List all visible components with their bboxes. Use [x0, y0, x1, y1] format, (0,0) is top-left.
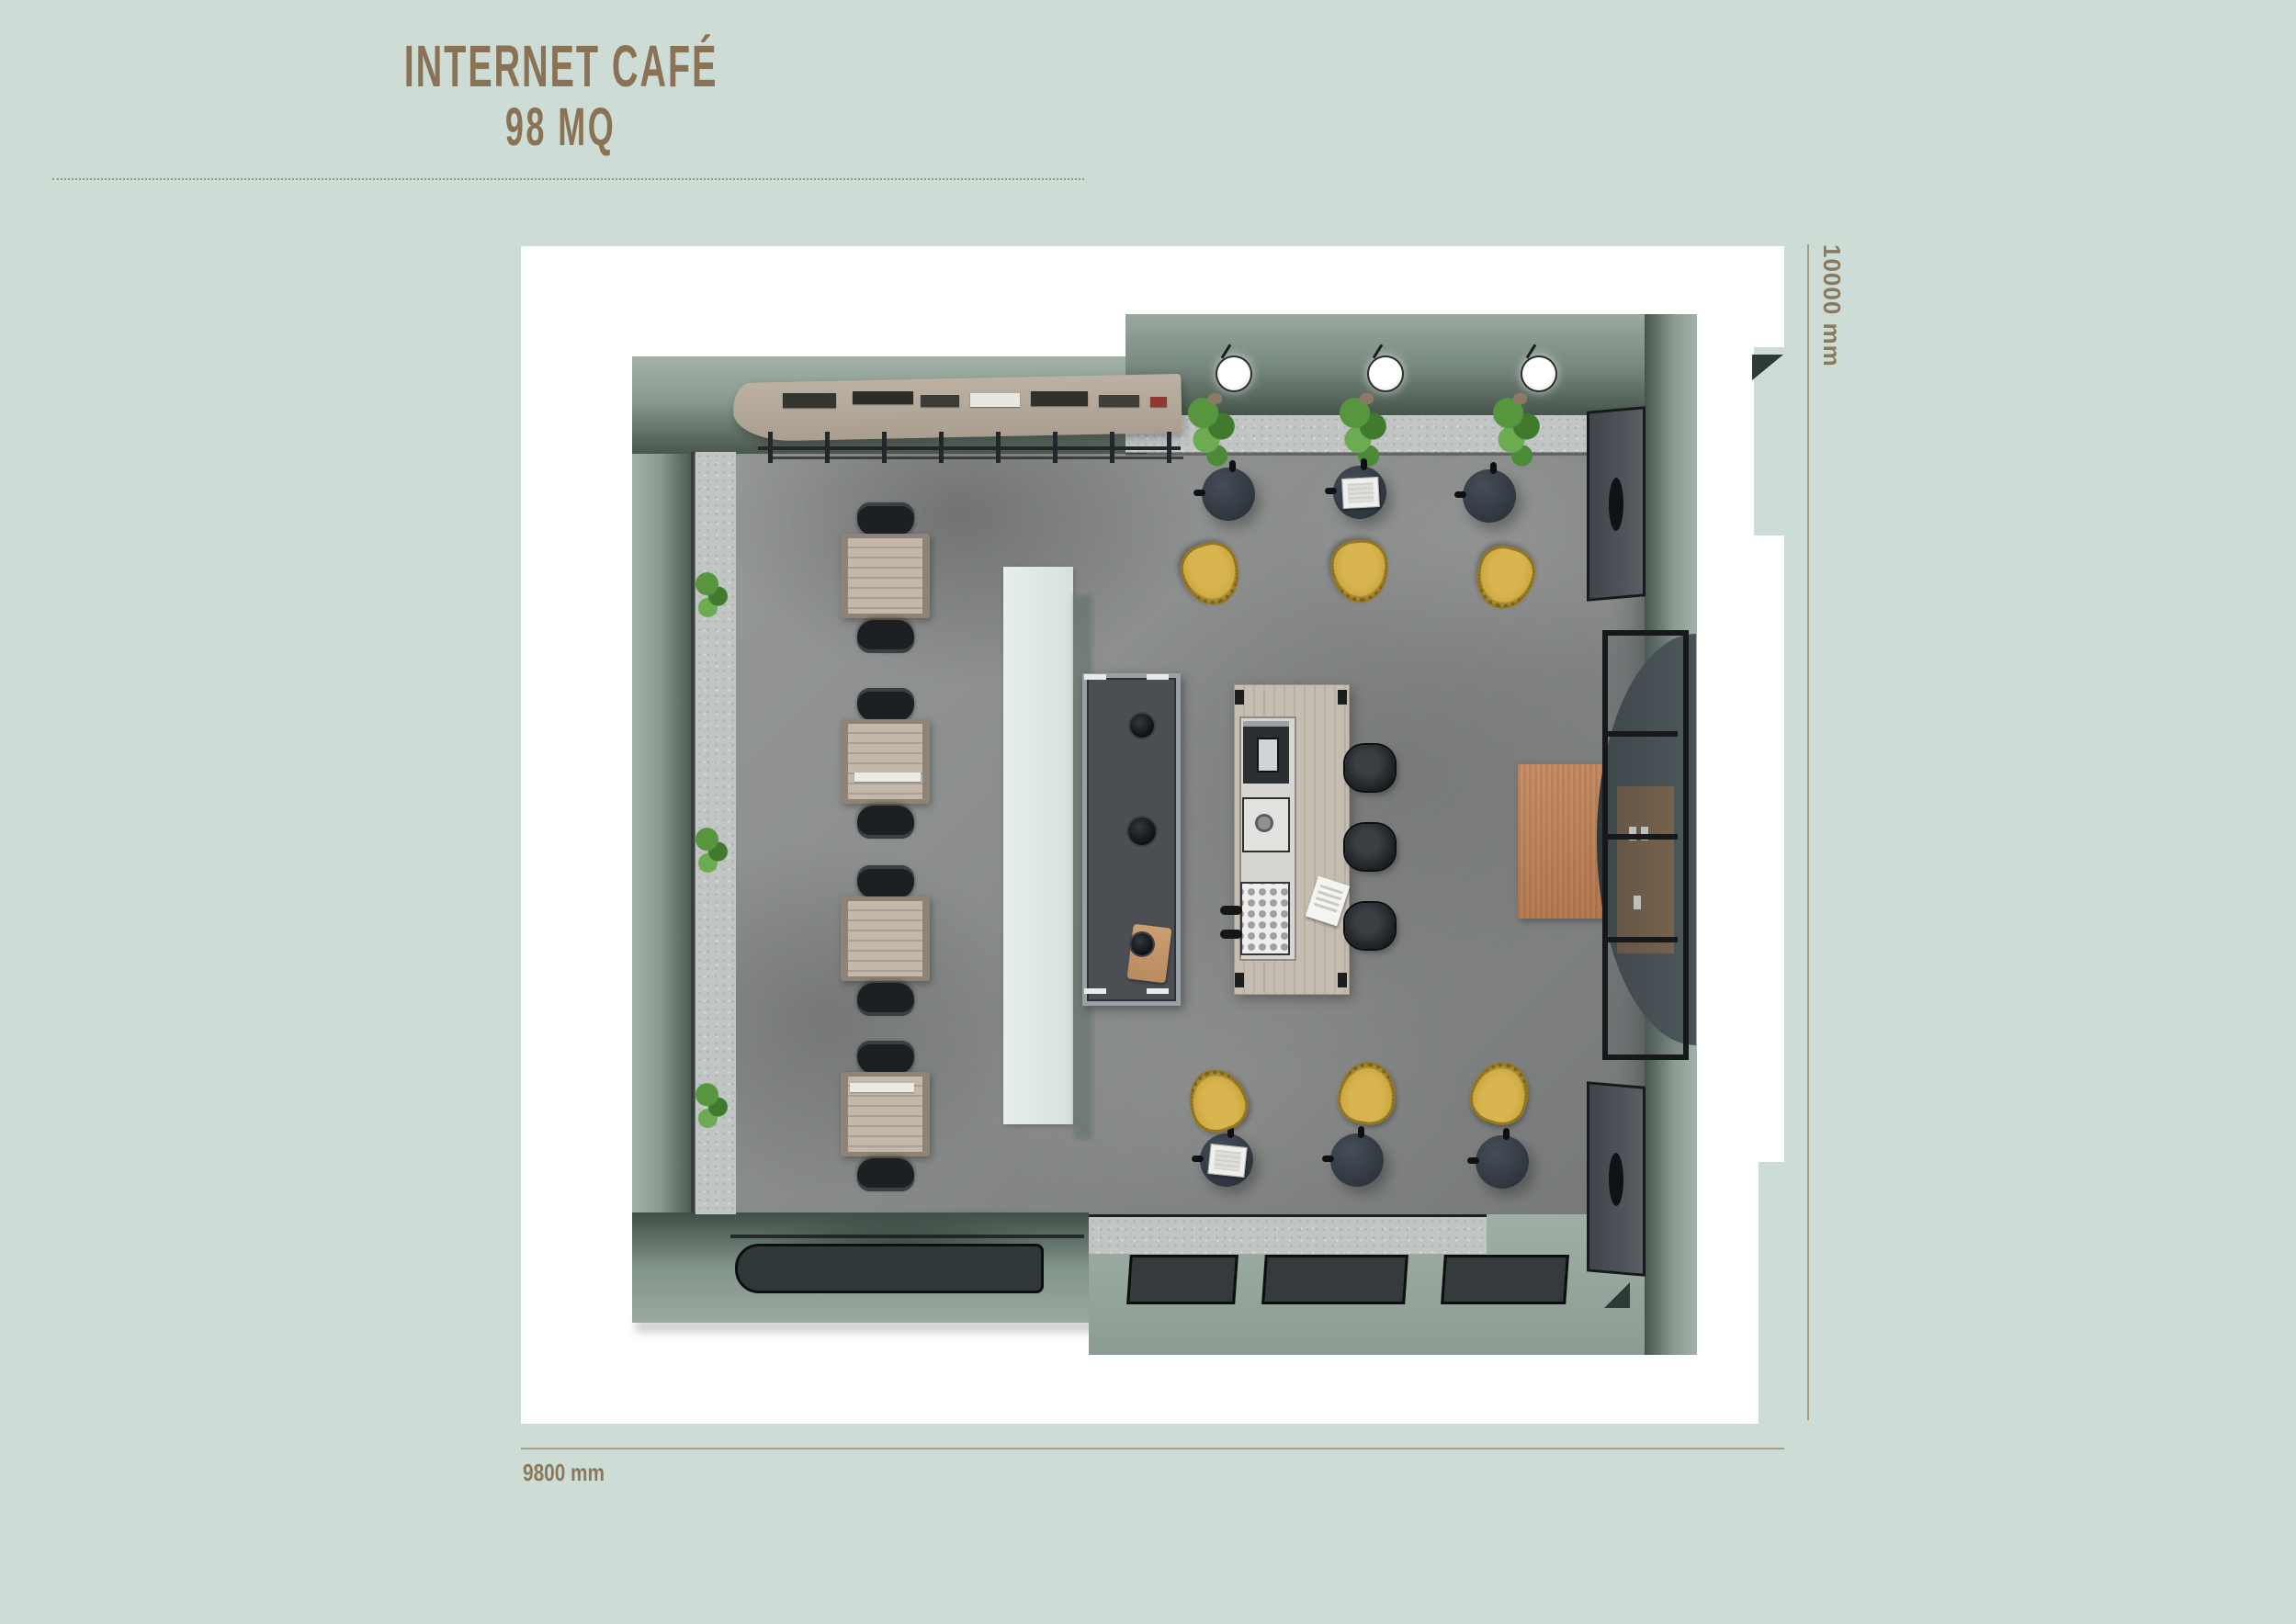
pendant-lamp: [1522, 357, 1555, 390]
bench-plant: [691, 1080, 733, 1132]
entry-floor-mat: [1126, 1255, 1238, 1304]
counter-corner-accent: [1147, 674, 1169, 680]
internet-desk: [841, 897, 930, 981]
paper-notch: [1754, 347, 1784, 536]
shelf-item: [970, 393, 1020, 407]
cutting-board: [1127, 924, 1172, 984]
cafe-table: [1476, 1135, 1529, 1189]
shelf-item: [853, 391, 913, 404]
laptop: [1207, 1144, 1247, 1178]
cup-tray: [1240, 882, 1290, 955]
horizontal-dimension-label: 9800 mm: [523, 1459, 625, 1487]
pendant-lamp: [1369, 357, 1402, 390]
bottle: [1131, 933, 1153, 955]
desk-keyboard: [854, 773, 921, 782]
counter-corner-accent: [1084, 674, 1106, 680]
title-line2: 98 MQ: [285, 101, 836, 154]
acoustic-panel: [1587, 406, 1646, 602]
cafe-table: [1330, 1133, 1384, 1187]
cafe-table: [1463, 469, 1516, 523]
entry-floor-mat: [1261, 1255, 1408, 1304]
display-glass-frame: [1602, 630, 1689, 1060]
bar-stool: [1345, 824, 1395, 870]
paper-notch: [1759, 1162, 1784, 1424]
island-leg: [1338, 973, 1347, 987]
bottle: [1130, 714, 1154, 738]
shelf-item: [783, 393, 836, 408]
shelf-leg: [996, 432, 1001, 463]
internet-desk: [841, 534, 930, 618]
glass-mullion: [1602, 937, 1678, 942]
shelf-leg: [939, 432, 944, 463]
walkway-threshold-strip: [1089, 1214, 1487, 1254]
desk-chair: [857, 1041, 914, 1074]
desk-keyboard: [850, 1083, 914, 1092]
shelf-item: [1031, 391, 1088, 406]
desk-chair: [857, 620, 914, 653]
bar-stool: [1345, 745, 1395, 791]
wall-left: [632, 356, 694, 1323]
entry-floor-mat: [1441, 1255, 1569, 1304]
reception-rail: [770, 457, 1183, 459]
desk-chair: [857, 806, 914, 839]
bar-sink-unit: [1242, 797, 1290, 852]
island-leg: [1235, 690, 1244, 705]
vertical-dimension-line: [1807, 244, 1809, 1420]
shelf-item: [921, 395, 959, 407]
shelf-leg: [1167, 432, 1171, 463]
shelf-leg: [768, 432, 773, 463]
title-line1: INTERNET CAFÉ: [285, 37, 836, 96]
glass-mullion: [1602, 731, 1678, 737]
hanging-plant: [1491, 397, 1544, 470]
shelf-leg: [1053, 432, 1058, 463]
counter-corner-accent: [1147, 988, 1169, 994]
desk-chair: [857, 502, 914, 536]
hanging-plant: [1186, 397, 1239, 470]
shelf-leg: [825, 432, 830, 463]
desk-chair: [857, 983, 914, 1016]
bottle: [1128, 818, 1156, 845]
vertical-dimension-label: 10000 mm: [1817, 244, 1846, 367]
acoustic-panel: [1587, 1081, 1646, 1277]
counter-corner-accent: [1084, 988, 1106, 994]
bar-stool: [1345, 903, 1395, 949]
page-title: INTERNET CAFÉ 98 MQ: [285, 37, 836, 154]
entrance-mat: [735, 1244, 1044, 1293]
shelf-item: [1150, 397, 1167, 407]
desk-chair: [857, 865, 914, 898]
cafe-table: [1202, 468, 1255, 521]
glass-mullion: [1602, 834, 1678, 840]
reception-rail: [758, 446, 1181, 450]
mint-divider-counter: [1003, 567, 1073, 1124]
bench-plant: [691, 825, 733, 876]
internet-desk: [841, 719, 930, 804]
espresso-machine: [1243, 721, 1289, 784]
shelf-item: [1099, 395, 1139, 407]
desk-chair: [857, 688, 914, 721]
page: INTERNET CAFÉ 98 MQ: [0, 0, 2296, 1624]
desk-chair: [857, 1158, 914, 1191]
beer-tap: [1220, 930, 1242, 939]
entrance-seam: [730, 1235, 1084, 1238]
laptop: [1341, 477, 1380, 509]
horizontal-dimension-line: [521, 1448, 1784, 1449]
shelf-leg: [882, 432, 887, 463]
beer-tap: [1220, 906, 1242, 915]
reception-shelf: [732, 374, 1182, 442]
bench-plant: [691, 570, 733, 621]
island-leg: [1235, 973, 1244, 987]
island-leg: [1338, 690, 1347, 705]
shelf-leg: [1110, 432, 1114, 463]
title-divider: [52, 178, 1084, 180]
pendant-lamp: [1217, 357, 1250, 390]
